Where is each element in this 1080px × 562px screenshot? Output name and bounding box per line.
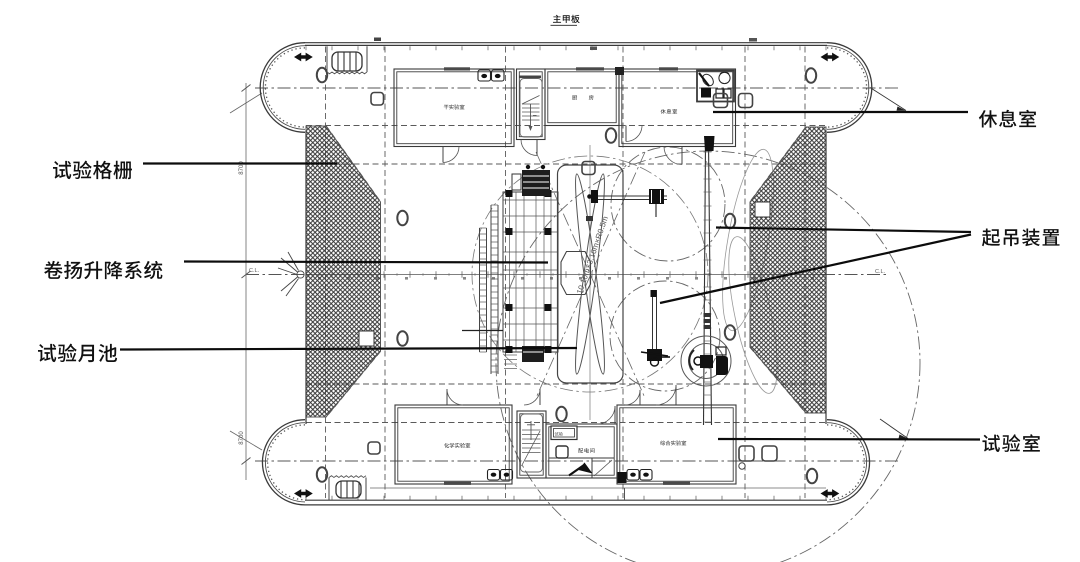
svg-text:C.L.: C.L. (875, 269, 886, 275)
svg-text:10.10m×3.16m×R0.5m: 10.10m×3.16m×R0.5m (575, 215, 610, 296)
svg-text:8700: 8700 (239, 431, 245, 445)
svg-text:C.L.: C.L. (249, 268, 260, 274)
